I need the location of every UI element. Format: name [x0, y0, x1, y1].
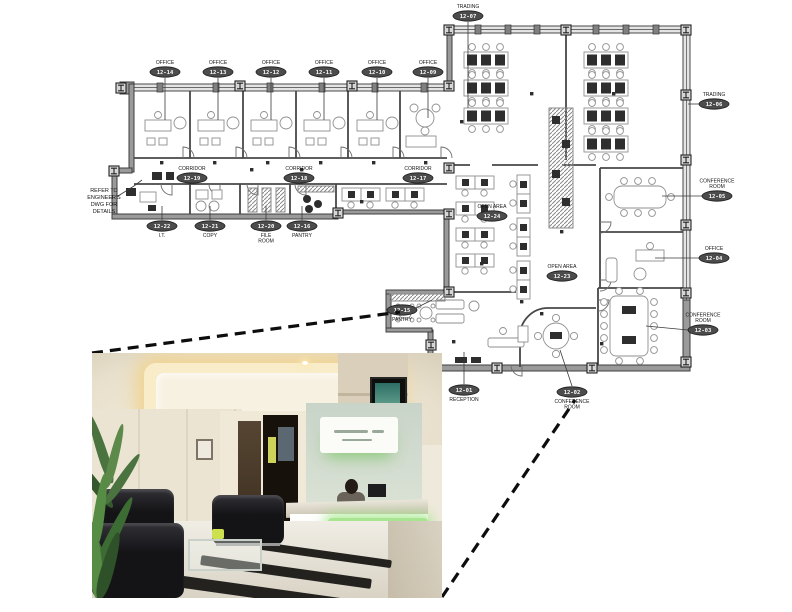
svg-text:12-23: 12-23: [554, 274, 571, 280]
svg-text:OFFICE: OFFICE: [209, 60, 228, 66]
svg-text:12-01: 12-01: [456, 388, 473, 394]
svg-text:12-07: 12-07: [460, 14, 477, 20]
svg-text:12-05: 12-05: [709, 194, 726, 200]
svg-text:I.T.: I.T.: [159, 233, 166, 239]
svg-text:12-18: 12-18: [291, 176, 308, 182]
svg-text:OFFICE: OFFICE: [156, 60, 175, 66]
svg-text:12-13: 12-13: [210, 70, 227, 76]
svg-text:OFFICE: OFFICE: [419, 60, 438, 66]
svg-text:12-20: 12-20: [258, 224, 275, 230]
svg-text:12-11: 12-11: [316, 70, 333, 76]
svg-text:ROOM: ROOM: [258, 238, 274, 244]
svg-text:CORRIDOR: CORRIDOR: [404, 166, 432, 172]
svg-text:OPEN AREA: OPEN AREA: [478, 204, 508, 210]
room-label-open-area-12-23: 12-23OPEN AREA: [547, 264, 577, 281]
svg-text:CORRIDOR: CORRIDOR: [285, 166, 313, 172]
photo-spotlight: [302, 361, 308, 365]
svg-text:OFFICE: OFFICE: [262, 60, 281, 66]
svg-text:RECEPTION: RECEPTION: [449, 397, 479, 403]
svg-text:12-21: 12-21: [202, 224, 219, 230]
svg-text:COPY: COPY: [203, 233, 218, 239]
svg-text:12-06: 12-06: [706, 102, 723, 108]
svg-text:12-16: 12-16: [294, 224, 311, 230]
svg-text:12-22: 12-22: [154, 224, 171, 230]
photo-coffee-table: [188, 539, 262, 571]
svg-text:PANTRY: PANTRY: [292, 233, 312, 239]
svg-text:12-14: 12-14: [157, 70, 174, 76]
svg-text:OFFICE: OFFICE: [705, 246, 724, 252]
svg-text:12-12: 12-12: [263, 70, 280, 76]
photo-table-item: [212, 529, 224, 539]
svg-text:ROOM: ROOM: [564, 404, 580, 410]
reception-photo: [92, 353, 442, 598]
svg-text:REFER TO: REFER TO: [90, 188, 118, 194]
svg-text:TRADING: TRADING: [457, 4, 480, 10]
svg-text:OFFICE: OFFICE: [368, 60, 387, 66]
callout-line-top: [92, 312, 400, 353]
room-label-corridor-12-19: 12-19CORRIDOR: [177, 166, 207, 183]
photo-doorway-window: [278, 427, 294, 461]
photo-desk-monitor: [368, 484, 386, 497]
room-label-corridor-12-17: 12-17CORRIDOR: [403, 166, 433, 183]
svg-text:ROOM: ROOM: [709, 184, 725, 190]
svg-text:ENGINEER'S: ENGINEER'S: [87, 195, 121, 201]
svg-text:DETAILS: DETAILS: [93, 209, 116, 215]
svg-text:12-03: 12-03: [695, 328, 712, 334]
photo-framed-picture: [196, 439, 213, 460]
room-label-trading-12-06: 12-06TRADING: [688, 92, 729, 109]
svg-text:TRADING: TRADING: [703, 92, 726, 98]
svg-text:12-19: 12-19: [184, 176, 201, 182]
photo-floor-reflection: [388, 521, 442, 598]
photo-poster: [268, 437, 276, 463]
plan-doors: [161, 147, 611, 376]
svg-text:12-10: 12-10: [369, 70, 386, 76]
room-label-open-area-12-24: 12-24OPEN AREA: [477, 204, 507, 221]
svg-text:PANTRY: PANTRY: [392, 317, 412, 323]
svg-text:12-09: 12-09: [420, 70, 437, 76]
room-label-corridor-12-18: 12-18CORRIDOR: [284, 166, 314, 183]
callout-line-bottom: [442, 400, 575, 597]
photo-logo-sign: [320, 417, 398, 453]
page: REFER TO ENGINEER'S DWG FOR DETAILS 12-1…: [0, 0, 792, 612]
svg-text:CORRIDOR: CORRIDOR: [178, 166, 206, 172]
svg-text:12-24: 12-24: [484, 214, 501, 220]
svg-text:ROOM: ROOM: [695, 318, 711, 324]
svg-text:OPEN AREA: OPEN AREA: [548, 264, 578, 270]
svg-text:12-02: 12-02: [564, 390, 581, 396]
svg-text:12-04: 12-04: [706, 256, 723, 262]
svg-text:OFFICE: OFFICE: [315, 60, 334, 66]
photo-receptionist-head: [345, 479, 358, 494]
room-label-office-12-04: 12-04OFFICE: [655, 246, 729, 263]
svg-text:DWG FOR: DWG FOR: [91, 202, 118, 208]
room-label-pantry-12-16: 12-16PANTRY: [287, 206, 317, 239]
svg-text:12-17: 12-17: [410, 176, 427, 182]
